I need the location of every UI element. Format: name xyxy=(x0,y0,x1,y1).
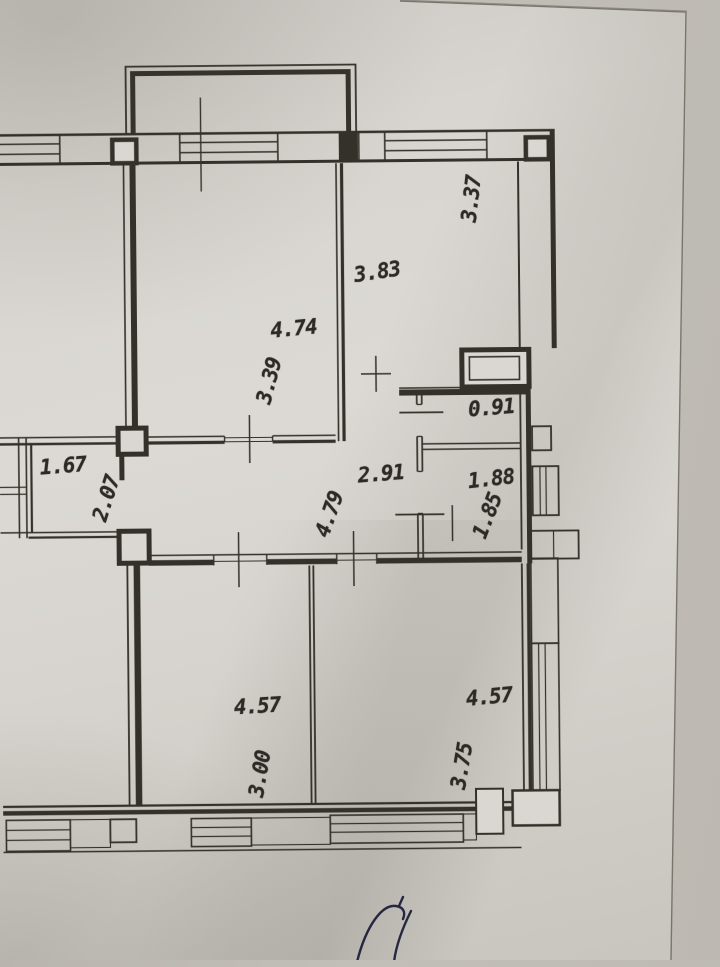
dimension-label-top-left-length: 4.74 xyxy=(269,314,318,342)
dimension-label-left-balcony-width: 1.67 xyxy=(39,452,87,480)
wall-bottom-rooms-top xyxy=(148,529,522,588)
dimension-label-bottom-right-length: 4.57 xyxy=(465,683,514,711)
balcony-top xyxy=(126,65,357,193)
bottom-rooms-walls xyxy=(127,558,560,805)
dimension-label-bottom-left-length: 4.57 xyxy=(233,693,281,720)
dimension-label-wc-width: 0.91 xyxy=(467,394,515,422)
left-balcony-walls xyxy=(0,428,149,564)
room-top-left-walls xyxy=(123,163,344,464)
dimension-label-hallway-width: 2.91 xyxy=(357,460,405,488)
wall-bottom-exterior xyxy=(3,788,560,852)
photo-scene: 3.83 3.37 4.74 3.39 0.91 2.91 1.88 1.85 … xyxy=(0,0,720,960)
floor-plan: 3.83 3.37 4.74 3.39 0.91 2.91 1.88 1.85 … xyxy=(0,0,720,963)
wall-top-exterior xyxy=(0,130,555,164)
paper-sheet: 3.83 3.37 4.74 3.39 0.91 2.91 1.88 1.85 … xyxy=(0,0,720,960)
